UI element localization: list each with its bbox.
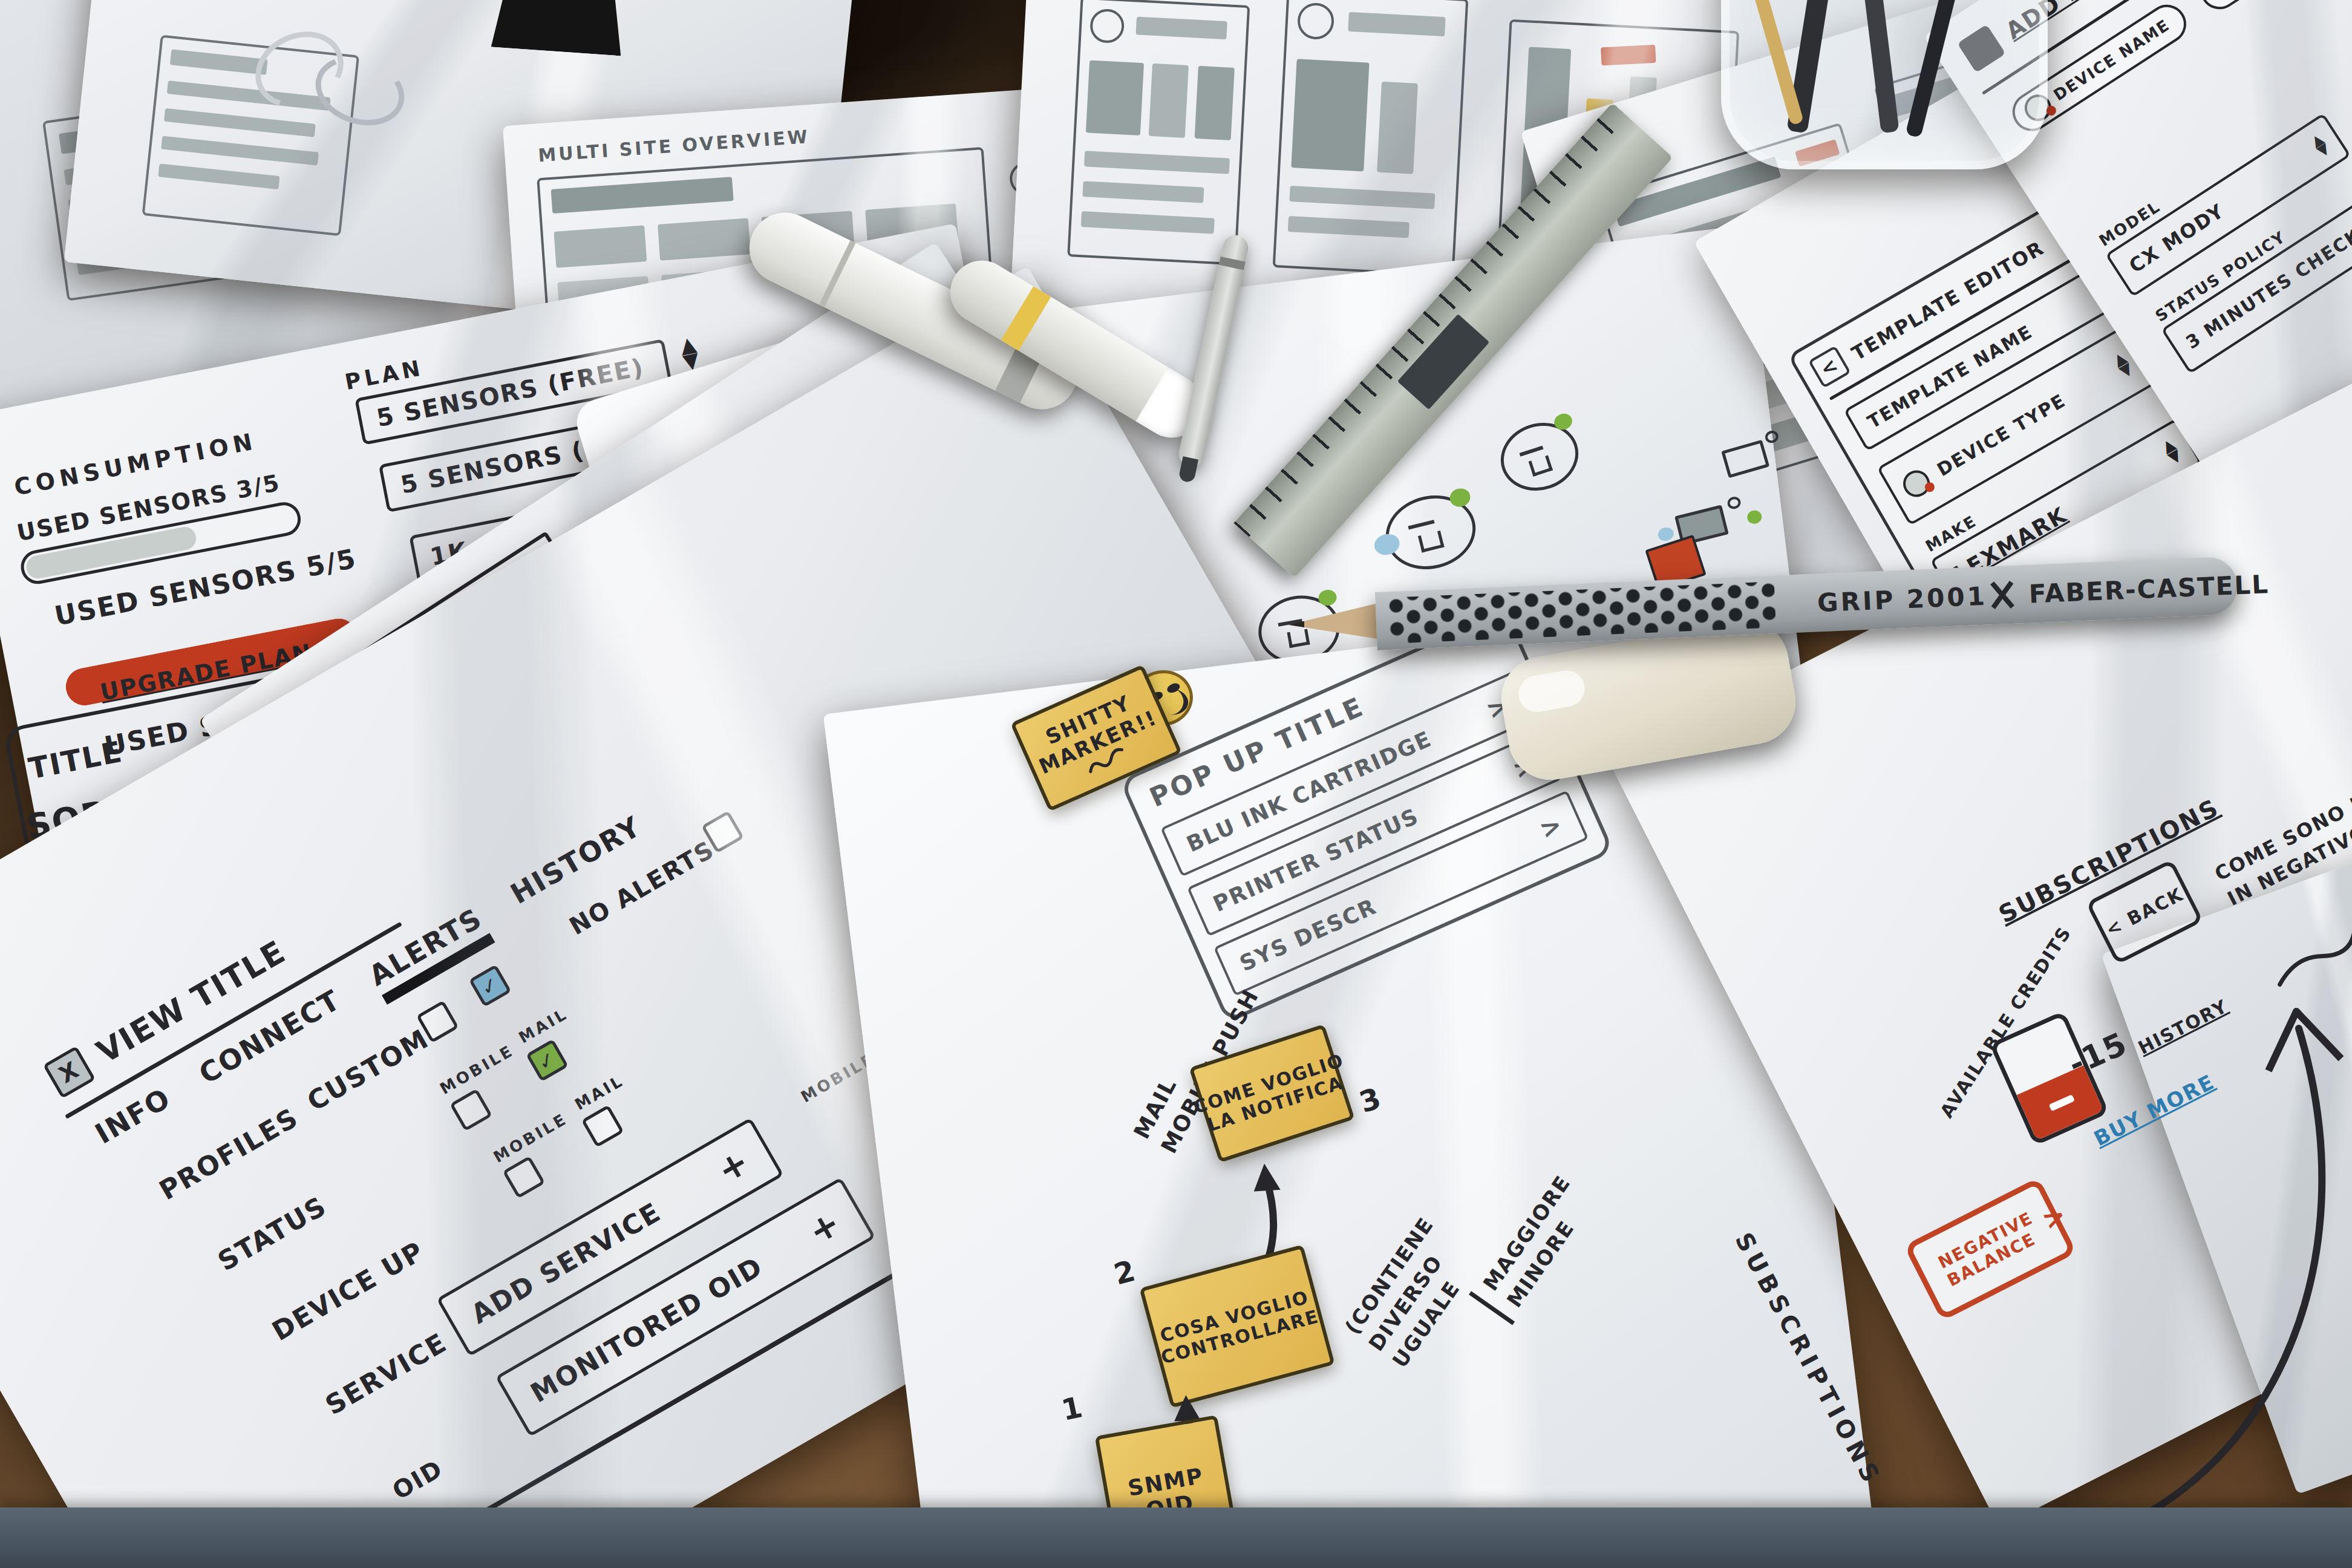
pen-jar (1721, 0, 2048, 169)
back-icon: < (1808, 345, 1851, 388)
pen-in-jar (1856, 0, 1899, 134)
col-mail: MAIL (572, 1071, 627, 1114)
status-label: STATUS (212, 1190, 332, 1276)
device-up-label: DEVICE UP (267, 1235, 430, 1347)
col-mobile: MOBILE (437, 1041, 517, 1098)
desk-photo: MULTI SITE OVERVIEW (0, 0, 2352, 1568)
checkbox-checked-blue: ✓ (469, 964, 512, 1007)
stepper-icon: ▲ ▼ (679, 335, 701, 370)
faber-castell-logo-icon (1986, 578, 2019, 611)
checkbox (502, 1156, 545, 1199)
overview-title: MULTI SITE OVERVIEW (537, 126, 810, 166)
add-device-button: ADD DEVICE + (2348, 0, 2352, 27)
device-avatar (1898, 465, 1935, 501)
mini-phone (1273, 0, 1469, 276)
mini-phone (1067, 0, 1250, 266)
stepper-down-icon: ▼ (2316, 142, 2331, 158)
pencil-tip (1288, 603, 1380, 643)
tabs-row: INFO CONNECT ALERTS HISTORY (90, 810, 654, 1163)
device-avatar (2207, 0, 2244, 4)
binder-clip (491, 0, 625, 56)
table-edge (0, 1508, 2352, 1568)
plus-icon: + (801, 1201, 848, 1252)
stepper-down-icon: ▼ (2166, 448, 2183, 465)
device-chip: DEVICE NAME (2193, 0, 2352, 17)
stepper-down-icon: ▼ (2118, 361, 2135, 378)
checkbox (449, 1088, 492, 1131)
red-mark (1601, 45, 1656, 66)
plus-icon: + (710, 1140, 757, 1191)
pen-in-jar (1905, 0, 1968, 138)
chevron-right-icon: > (1535, 808, 1567, 844)
col-mail: MAIL (515, 1004, 570, 1047)
service-label: SERVICE (320, 1327, 452, 1420)
checkbox (581, 1105, 624, 1148)
pencil-brand: FABER-CASTELL (2028, 569, 2270, 609)
checkbox-checked-green: ✓ (526, 1039, 569, 1082)
pencil-in-jar (1741, 0, 1804, 125)
close-icon: X (43, 1046, 96, 1099)
oid-label: OID (388, 1454, 448, 1505)
tab-info: INFO (90, 1082, 176, 1151)
pencil-model: GRIP 2001 (1817, 581, 1988, 618)
big-curved-arrow (2014, 980, 2352, 1561)
